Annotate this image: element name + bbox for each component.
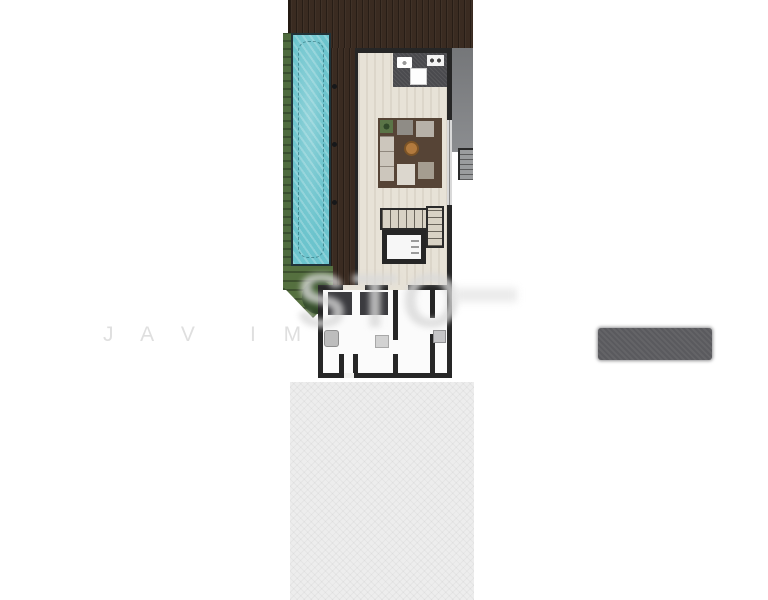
watermark-text-left: J A V (103, 323, 206, 347)
deck-light-icon (332, 84, 337, 89)
armchair (397, 164, 415, 185)
sliding-door (447, 120, 452, 205)
lounge-chair (416, 121, 434, 137)
swimming-pool (291, 33, 331, 266)
staircase-side-flight (426, 206, 444, 248)
living-room (355, 48, 452, 290)
door-opening (344, 373, 354, 378)
cushion (397, 120, 413, 135)
watermark-large: STO (296, 258, 466, 345)
living-room-rug (378, 118, 442, 188)
watermark-smudge (455, 288, 517, 302)
kitchen-island (410, 68, 427, 85)
side-table (418, 162, 434, 179)
exterior-stairs (458, 148, 473, 180)
interior-wall (393, 354, 398, 373)
redacted-label (598, 328, 712, 360)
kitchen-counter (393, 53, 447, 87)
stove-icon (427, 55, 444, 66)
deck-light-icon (332, 200, 337, 205)
patio-area (290, 382, 474, 600)
door-jamb (339, 354, 344, 373)
pool-edge-line (298, 41, 324, 258)
plant-icon (380, 120, 393, 133)
coffee-table (404, 141, 419, 156)
sink-icon (397, 57, 412, 68)
floorplan-image: J A V I M (0, 0, 768, 600)
deck-light-icon (332, 142, 337, 147)
sofa (380, 136, 394, 181)
side-terrace (452, 48, 473, 152)
elevator-marks (411, 240, 419, 254)
door-jamb (353, 354, 358, 373)
